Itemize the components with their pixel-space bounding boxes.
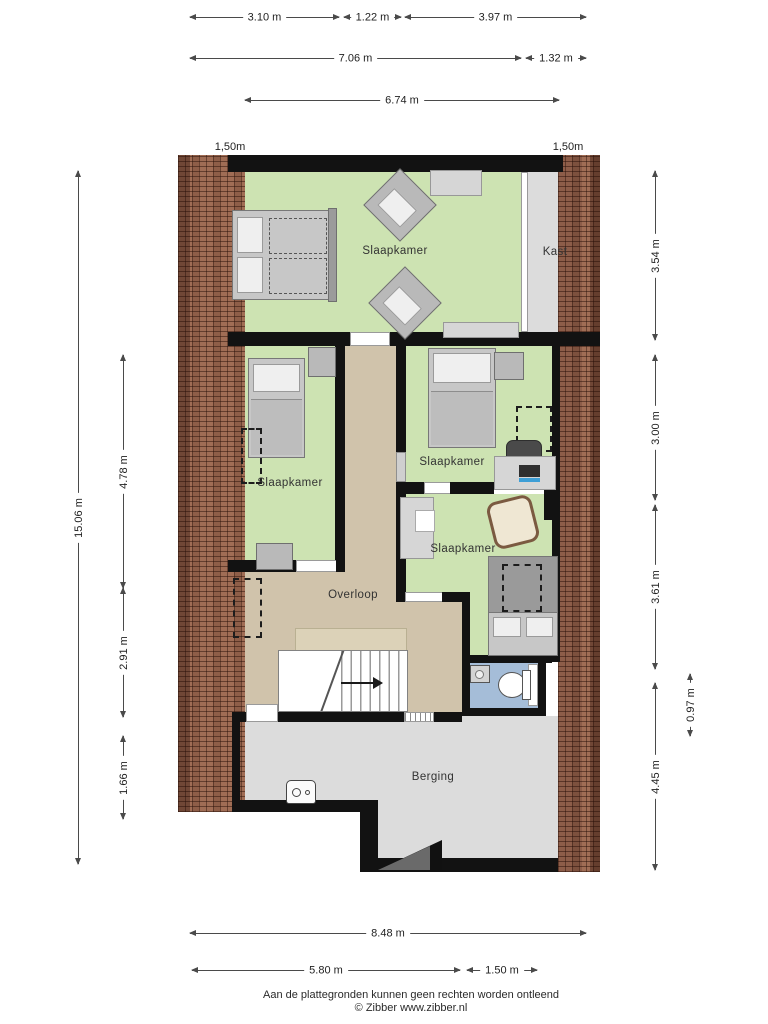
dimension-label: 3.54 m	[650, 234, 662, 278]
bed-pillow	[237, 257, 263, 293]
wall-toilet-bottom	[462, 708, 546, 716]
dimension-line: 6.74 m	[245, 100, 559, 101]
dimension-line: 5.80 m	[192, 970, 460, 971]
boiler-icon	[286, 780, 316, 804]
double-bed-mid	[428, 348, 496, 448]
dresser-top	[430, 170, 482, 196]
bed-pillow	[433, 353, 491, 383]
sink-basin	[475, 670, 484, 679]
wall-berging-step	[360, 800, 378, 870]
roof-window-outline	[241, 428, 262, 484]
roof-width-label-left: 1,50m	[215, 141, 246, 153]
floorplan-canvas: Slaapkamer Kast Slaapkamer Slaapkamer Sl…	[0, 0, 768, 1024]
room-label-kast: Kast	[543, 246, 568, 258]
dimension-label: 0.97 m	[685, 683, 697, 727]
dimension-label: 2.91 m	[118, 631, 130, 675]
dimension-label: 7.06 m	[334, 52, 378, 64]
dimension-label: 3.97 m	[474, 11, 518, 23]
bed-pillow	[253, 364, 300, 392]
closet-shelf	[415, 510, 435, 532]
bed-pillow	[526, 617, 553, 637]
dimension-label: 3.10 m	[243, 11, 287, 23]
bed-quilt	[269, 258, 327, 294]
wall-mid-bedroom-bottom-a	[396, 482, 426, 494]
window-berging	[246, 704, 278, 722]
room-label-slaapkamer-left: Slaapkamer	[257, 477, 322, 489]
footer-disclaimer: Aan de plattegronden kunnen geen rechten…	[56, 989, 766, 1001]
wall-bottom-bedroom-left	[462, 592, 470, 716]
built-in-closet	[400, 497, 434, 559]
dimension-line: 3.10 m	[190, 17, 339, 18]
armchair-cushion	[377, 188, 417, 228]
double-bed-bottom	[488, 612, 558, 656]
door-berging	[404, 712, 434, 722]
room-label-berging: Berging	[412, 771, 454, 783]
dimension-label: 1.22 m	[351, 11, 395, 23]
bed-headboard	[328, 208, 337, 302]
room-label-slaapkamer-bottom: Slaapkamer	[430, 543, 495, 555]
dresser-bottom	[443, 322, 519, 338]
staircase	[278, 650, 408, 712]
nightstand	[308, 347, 336, 377]
stair-landing	[295, 628, 407, 652]
roof-window-outline	[233, 578, 262, 638]
roof-band-right	[558, 155, 600, 872]
wall-main-bottom-left	[228, 332, 350, 346]
dimension-label: 1.66 m	[118, 756, 130, 800]
dimension-line: 1.66 m	[123, 736, 124, 819]
bed-blanket	[431, 391, 493, 445]
dimension-label: 15.06 m	[73, 493, 85, 543]
dimension-line: 1.50 m	[467, 970, 537, 971]
dimension-label: 4.45 m	[650, 755, 662, 799]
dimension-line: 1.22 m	[344, 17, 401, 18]
dimension-line: 7.06 m	[190, 58, 521, 59]
dimension-label: 3.61 m	[650, 565, 662, 609]
laptop-icon	[519, 465, 540, 477]
dimension-line: 8.48 m	[190, 933, 586, 934]
dimension-label: 6.74 m	[380, 94, 424, 106]
dimension-label: 3.00 m	[650, 406, 662, 450]
dimension-label: 8.48 m	[366, 927, 410, 939]
dimension-line: 15.06 m	[78, 171, 79, 864]
room-label-slaapkamer-mid: Slaapkamer	[419, 456, 484, 468]
wall-toilet-right	[538, 655, 546, 716]
stair-direction-arrow	[373, 677, 383, 689]
door-left-bedroom	[296, 560, 338, 572]
boiler-ring	[292, 788, 301, 797]
dimension-line: 1.32 m	[526, 58, 586, 59]
bed-quilt	[269, 218, 327, 254]
wall-top	[228, 155, 563, 172]
kast-sliding-door	[521, 172, 528, 332]
door-mid-bedroom-bottom	[424, 482, 452, 494]
double-bed-main	[232, 210, 336, 300]
door-main-bedroom	[350, 332, 390, 346]
dimension-line: 3.54 m	[655, 171, 656, 340]
dimension-line: 2.91 m	[123, 588, 124, 717]
bed-pillow	[237, 217, 263, 253]
wall-berging-left	[232, 712, 240, 812]
stair-direction-line	[341, 682, 375, 684]
bed-pillow	[493, 617, 521, 637]
door-bottom-bedroom	[405, 592, 443, 602]
dimension-line: 3.00 m	[655, 355, 656, 500]
dimension-line: 4.45 m	[655, 683, 656, 870]
footer-copyright: © Zibber www.zibber.nl	[56, 1002, 766, 1014]
boiler-dot	[305, 790, 310, 795]
door-leaf-mid-bedroom	[396, 452, 406, 482]
roof-width-label-right: 1,50m	[553, 141, 584, 153]
dimension-line: 0.97 m	[690, 674, 691, 736]
cabinet	[494, 352, 524, 380]
hall-floor-top	[345, 346, 396, 602]
armchair-cushion	[382, 286, 422, 326]
room-label-slaapkamer-main: Slaapkamer	[362, 245, 427, 257]
dimension-label: 1.32 m	[534, 52, 578, 64]
toilet-tank	[522, 670, 531, 700]
wall-left-bedroom-bottom-b	[336, 560, 345, 572]
laptop-keyboard	[519, 478, 540, 482]
berging-sloped-corner	[378, 846, 430, 870]
room-label-overloop: Overloop	[328, 589, 378, 601]
wall-hall-left	[335, 346, 345, 572]
cabinet	[256, 543, 293, 570]
dimension-label: 1.50 m	[480, 964, 524, 976]
dimension-line: 4.78 m	[123, 355, 124, 588]
dimension-line: 3.97 m	[405, 17, 586, 18]
dimension-label: 5.80 m	[304, 964, 348, 976]
dimension-label: 4.78 m	[118, 450, 130, 494]
sink-icon	[470, 665, 490, 683]
desk	[494, 456, 556, 490]
roof-window-outline	[502, 564, 542, 612]
dimension-line: 3.61 m	[655, 505, 656, 669]
wall-mid-bedroom-bottom-b	[450, 482, 494, 494]
